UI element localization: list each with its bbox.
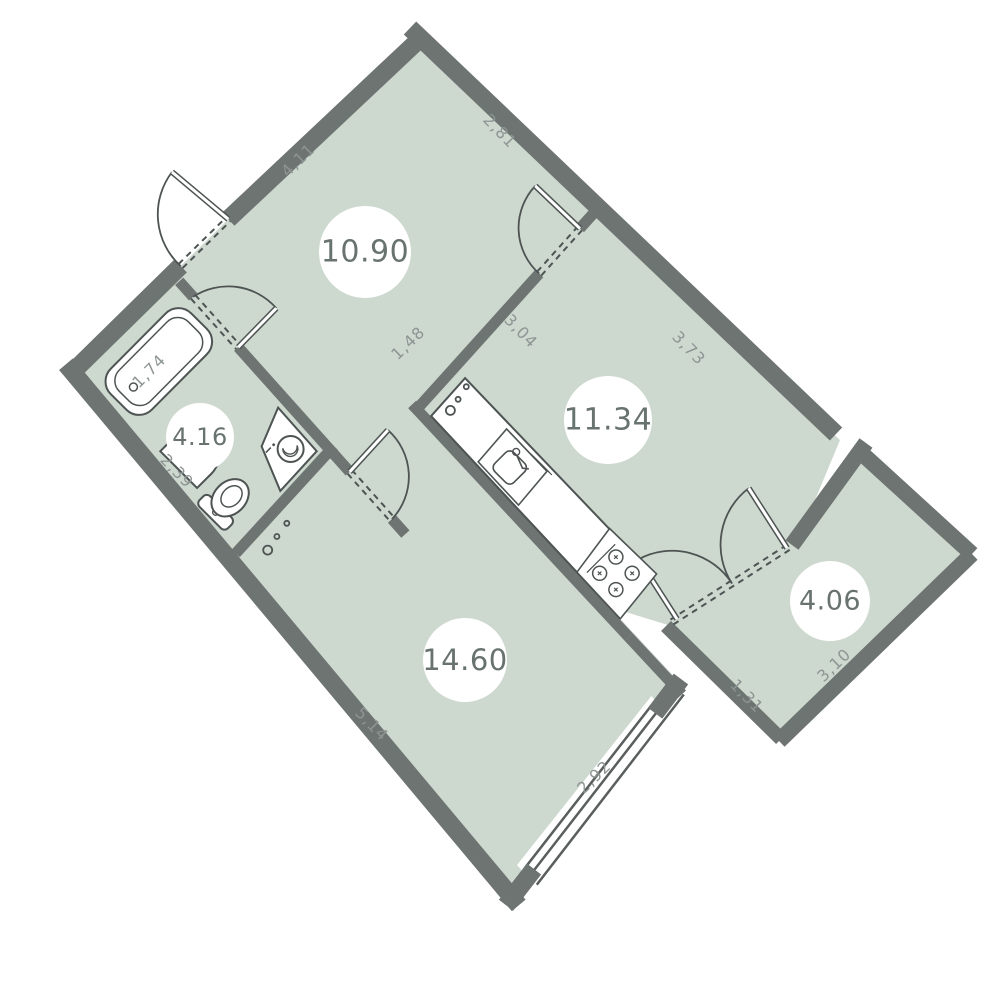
room-label-hall: 10.90: [319, 206, 411, 298]
entry-door-leaf-inner: [172, 172, 228, 219]
room-label-living-room: 14.60: [422, 618, 508, 702]
room-area-value: 4.16: [172, 423, 227, 451]
room-area-value: 11.34: [564, 403, 652, 438]
entry-door-swing-arc: [158, 172, 181, 266]
room-area-value: 4.06: [799, 586, 861, 617]
room-label-kitchen: 11.34: [564, 376, 652, 464]
floor-plan: 10.904.1611.3414.604.064,112,811,483,043…: [0, 0, 1000, 1000]
room-label-balcony: 4.06: [790, 561, 870, 641]
room-area-value: 14.60: [422, 643, 508, 677]
floor-plan-canvas: 10.904.1611.3414.604.064,112,811,483,043…: [0, 0, 1000, 1000]
room-area-value: 10.90: [321, 235, 409, 270]
